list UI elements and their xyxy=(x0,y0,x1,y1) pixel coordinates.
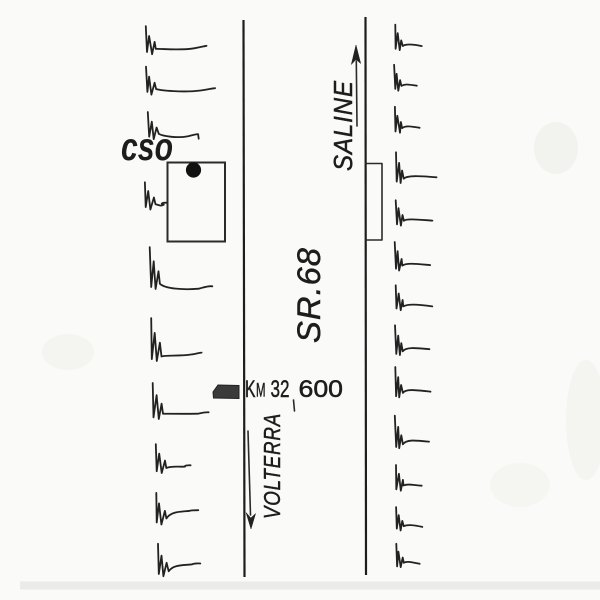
svg-text:VOLTERRA: VOLTERRA xyxy=(259,413,285,519)
svg-text:SALINE: SALINE xyxy=(328,80,358,171)
svg-text:cso: cso xyxy=(121,126,173,169)
svg-text:600: 600 xyxy=(299,376,344,403)
svg-text:SR.68: SR.68 xyxy=(291,247,327,343)
svg-text:M: M xyxy=(256,381,266,402)
svg-text:K: K xyxy=(245,376,256,403)
svg-text:32: 32 xyxy=(271,376,290,403)
